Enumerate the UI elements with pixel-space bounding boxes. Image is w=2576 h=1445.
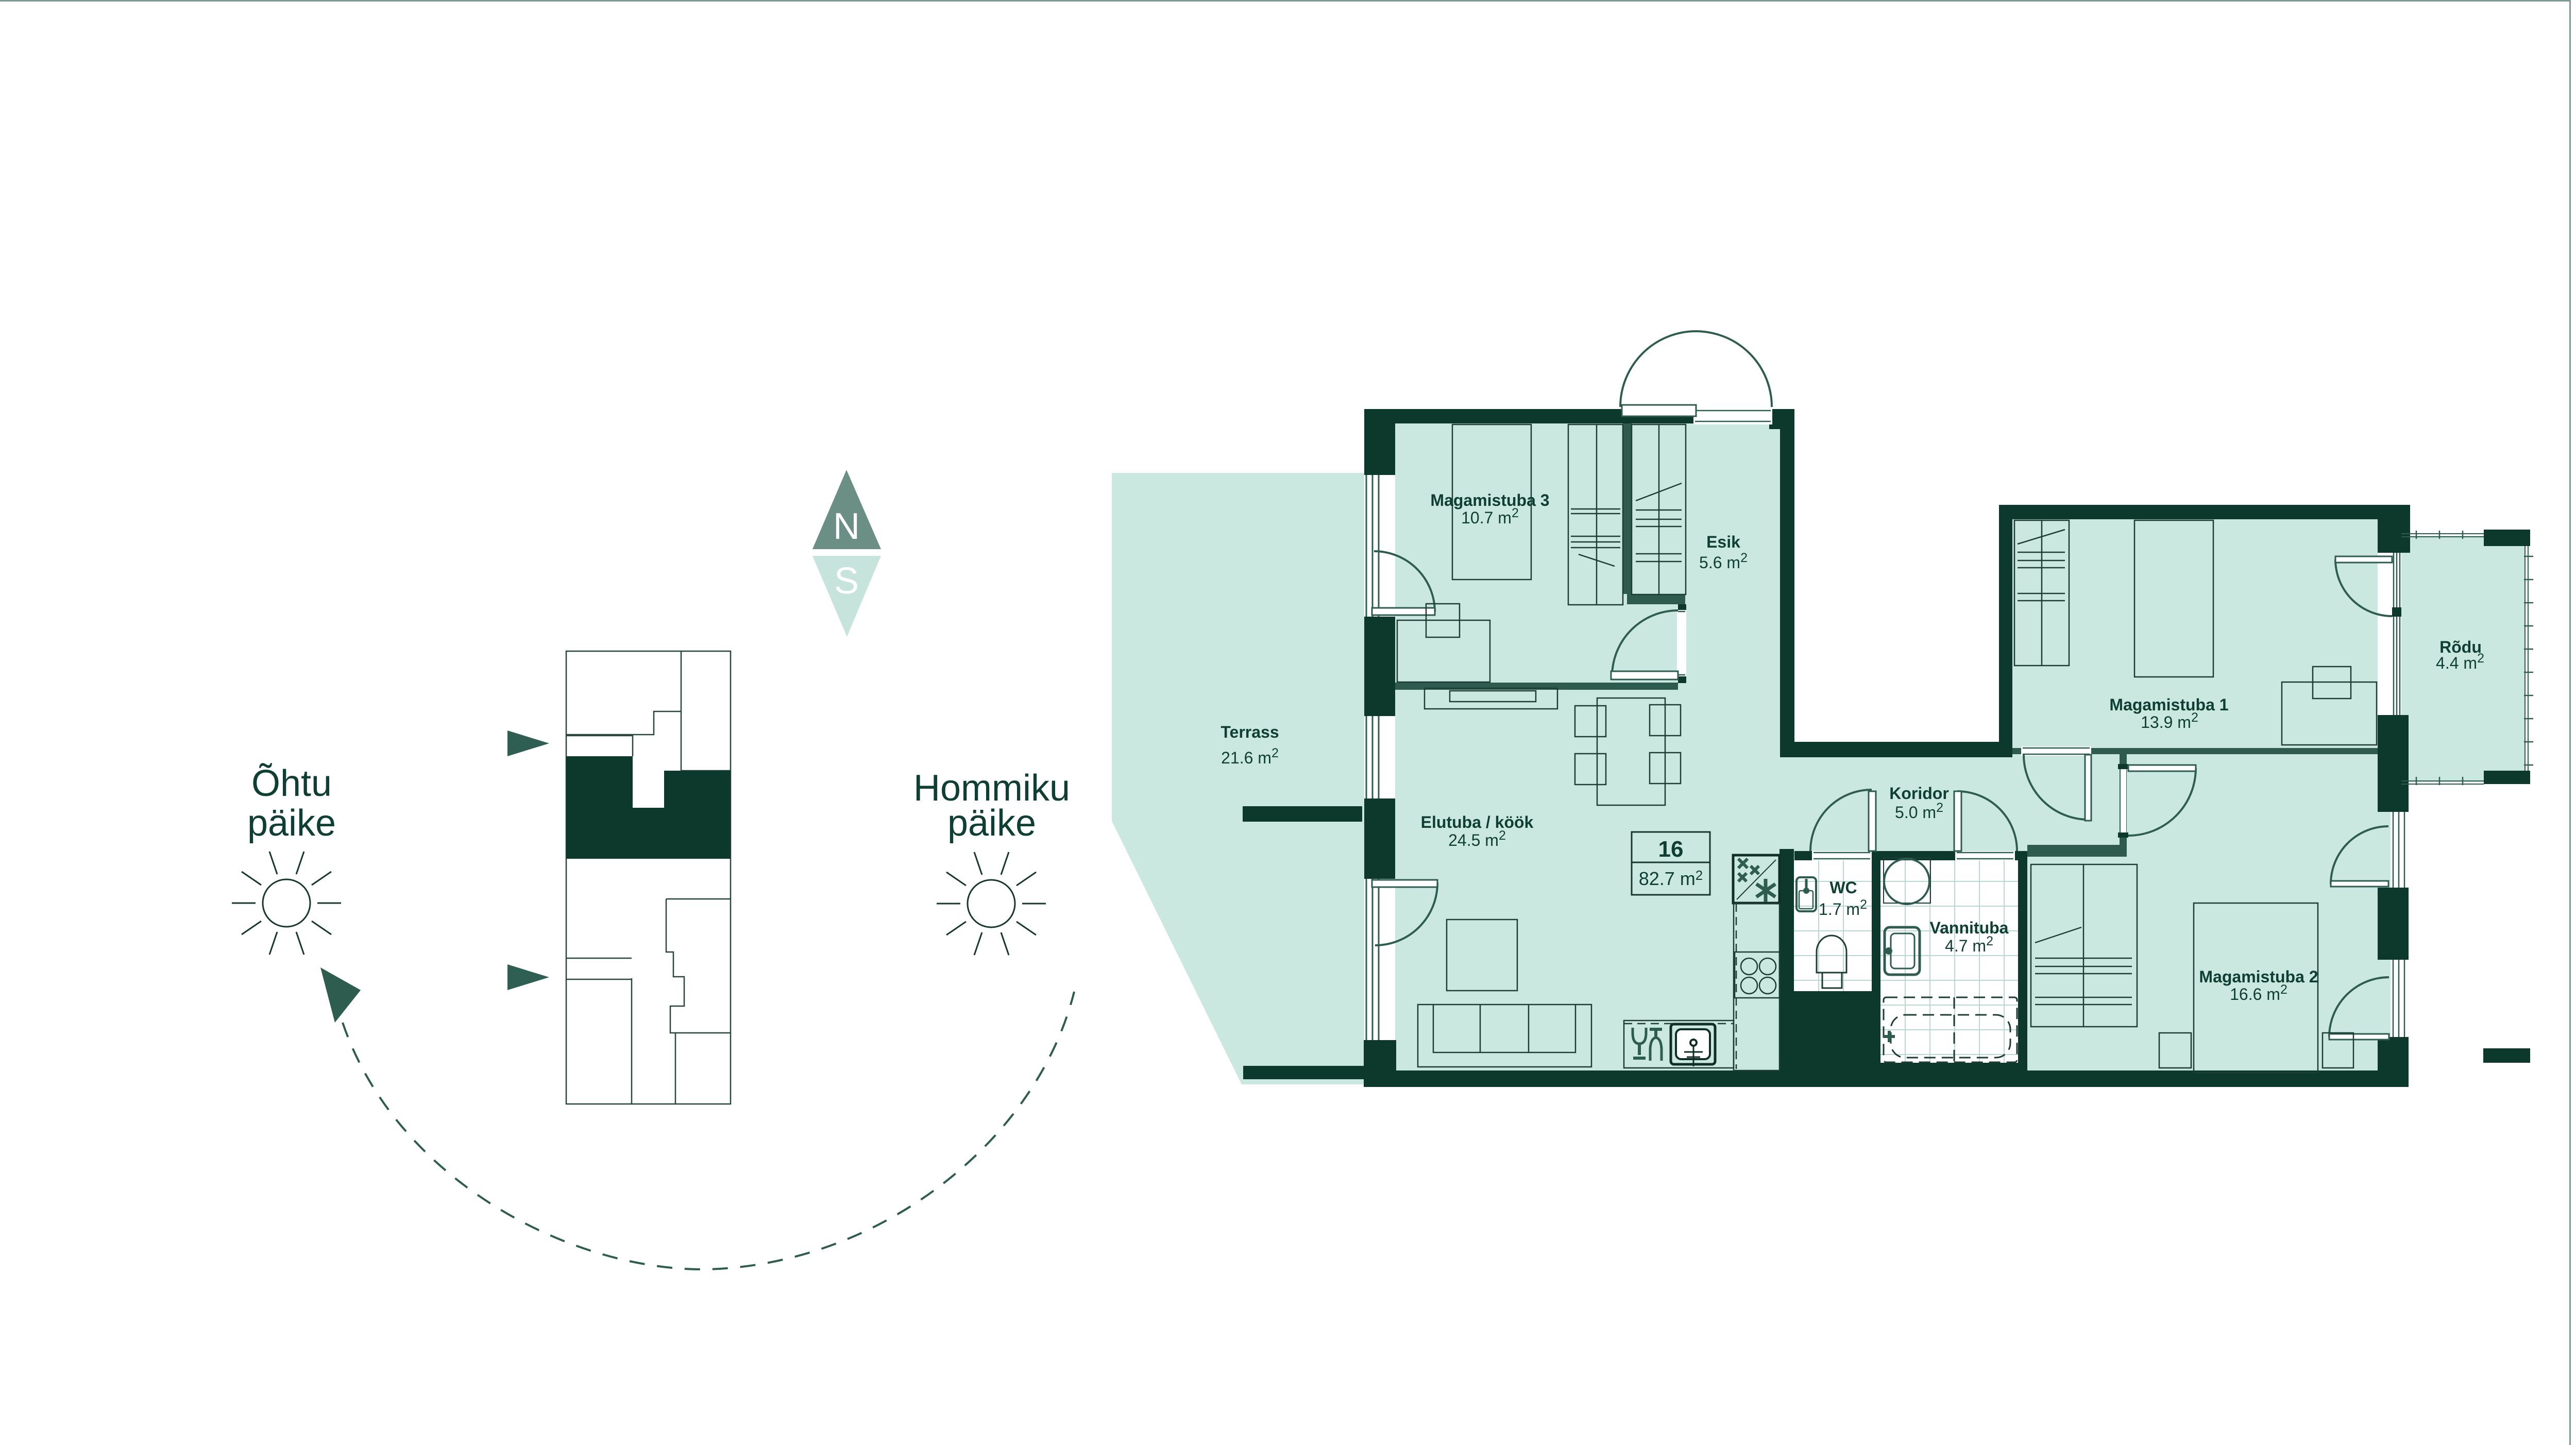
- svg-text:4.7 m2: 4.7 m2: [1945, 934, 1993, 955]
- svg-text:Elutuba / köök: Elutuba / köök: [1421, 813, 1534, 831]
- svg-text:5.0 m2: 5.0 m2: [1895, 801, 1943, 822]
- svg-text:24.5 m2: 24.5 m2: [1448, 828, 1506, 849]
- svg-text:Magamistuba 1: Magamistuba 1: [2109, 695, 2228, 714]
- svg-text:Koridor: Koridor: [1889, 784, 1949, 803]
- svg-text:1.7 m2: 1.7 m2: [1819, 897, 1867, 919]
- svg-text:Esik: Esik: [1706, 533, 1740, 551]
- svg-text:S: S: [834, 560, 859, 602]
- svg-text:WC: WC: [1829, 878, 1857, 897]
- svg-text:21.6 m2: 21.6 m2: [1221, 746, 1279, 767]
- svg-text:82.7 m2: 82.7 m2: [1639, 868, 1703, 889]
- svg-text:päike: päike: [947, 803, 1036, 844]
- svg-text:Magamistuba 3: Magamistuba 3: [1430, 491, 1549, 509]
- svg-text:Terrass: Terrass: [1221, 723, 1279, 741]
- svg-text:16: 16: [1658, 837, 1684, 862]
- svg-text:4.4 m2: 4.4 m2: [2436, 651, 2484, 672]
- svg-text:N: N: [833, 506, 860, 547]
- svg-text:Magamistuba 2: Magamistuba 2: [2199, 967, 2318, 986]
- svg-text:päike: päike: [247, 803, 336, 844]
- svg-text:13.9 m2: 13.9 m2: [2141, 710, 2198, 732]
- svg-text:5.6 m2: 5.6 m2: [1699, 551, 1748, 572]
- svg-text:Õhtu: Õhtu: [251, 763, 332, 804]
- svg-text:16.6 m2: 16.6 m2: [2230, 982, 2287, 1004]
- svg-text:Vannituba: Vannituba: [1930, 919, 2009, 937]
- svg-text:10.7 m2: 10.7 m2: [1461, 506, 1519, 527]
